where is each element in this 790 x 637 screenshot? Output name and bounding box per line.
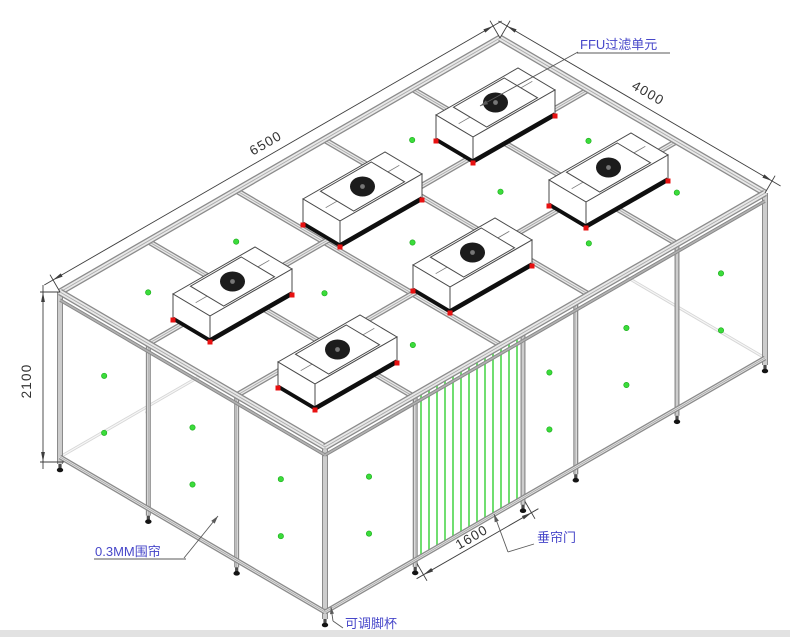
dim-length-6500: 6500: [247, 128, 285, 158]
dim-height-2100: 2100: [19, 364, 34, 399]
cad-viewport: 6500 4000 2100 1600 FFU过滤单元 0.3MM围帘 垂帘门 …: [0, 0, 790, 637]
ffu-unit: [301, 152, 425, 250]
clean-booth-isometric-drawing: 6500 4000 2100 1600 FFU过滤单元 0.3MM围帘 垂帘门 …: [0, 0, 790, 637]
label-enclosure-curtain: 0.3MM围帘: [95, 544, 161, 559]
ffu-unit: [434, 68, 558, 166]
label-adjustable-foot: 可调脚杯: [345, 616, 397, 631]
ffu-unit: [171, 247, 295, 345]
label-ffu-unit: FFU过滤单元: [580, 37, 657, 52]
dim-width-4000: 4000: [629, 78, 667, 108]
ffu-unit: [411, 218, 535, 316]
label-curtain-door: 垂帘门: [537, 530, 576, 545]
bottom-border: [0, 630, 790, 637]
ffu-unit: [547, 133, 671, 231]
